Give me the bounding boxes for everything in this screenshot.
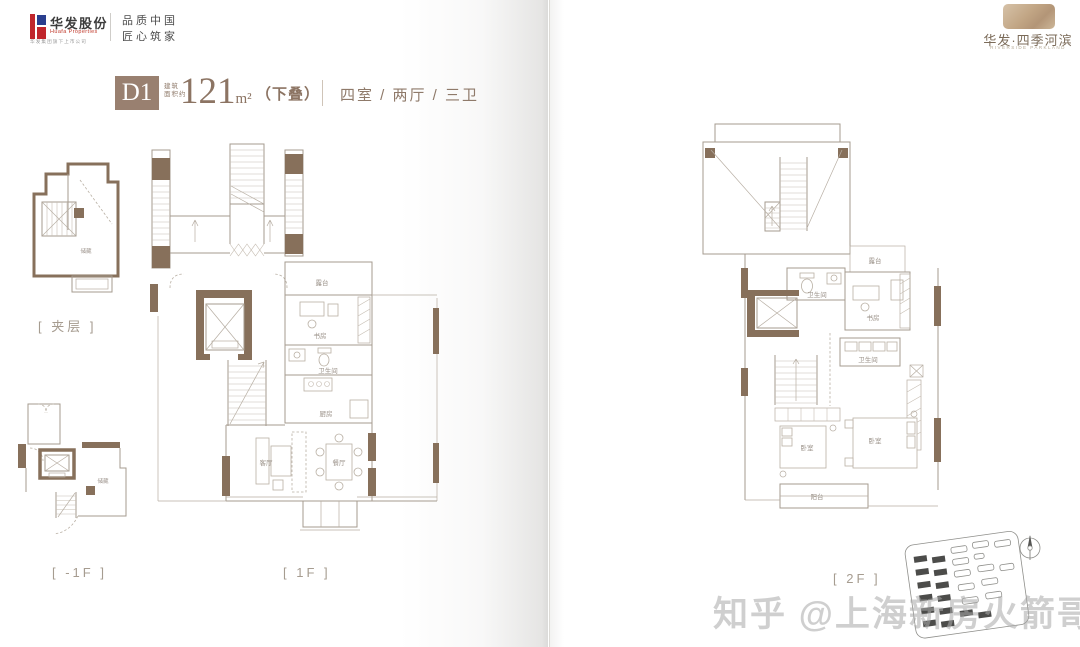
floorplan-mezzanine: 储藏 xyxy=(22,158,140,298)
page-fold-highlight xyxy=(550,0,564,647)
room-1f-living: 客厅 xyxy=(260,458,274,467)
project-artwork xyxy=(1003,4,1055,29)
caption-2f: [ 2F ] xyxy=(833,571,881,586)
project-name-en: RIVERSIDE PARKLAND xyxy=(968,45,1080,50)
mezzanine-room-label: 储藏 xyxy=(80,247,92,255)
room-1f-terrace: 露台 xyxy=(316,278,329,287)
room-2f-bath1: 卫生间 xyxy=(807,290,827,299)
logo-tagline: 华发集团旗下上市公司 xyxy=(30,39,87,45)
room-2f-study: 书房 xyxy=(867,313,880,322)
floorplan-1f: 露台 书房 卫生间 厨房 客厅 餐厅 xyxy=(140,138,450,563)
watermark: 知乎 @上海新房火箭哥 xyxy=(713,586,1080,637)
room-1f-kitchen: 厨房 xyxy=(320,409,333,418)
header-divider xyxy=(110,13,111,41)
room-1f-study: 书房 xyxy=(314,331,327,340)
caption-1f: [ 1F ] xyxy=(283,565,331,580)
room-2f-bedroom-left: 卧室 xyxy=(801,443,815,452)
floorplan-2f: 露台 卫生间 书房 卫生间 xyxy=(695,118,945,563)
area-value: 121m² xyxy=(180,70,252,113)
room-2f-bedroom-right: 卧室 xyxy=(869,436,883,445)
room-1f-bath: 卫生间 xyxy=(318,366,338,375)
basement-room-label: 储藏 xyxy=(97,477,109,485)
title-divider xyxy=(322,80,323,106)
compass-icon xyxy=(1020,535,1040,560)
area-unit: m² xyxy=(236,91,252,107)
unit-code-badge: D1 xyxy=(115,76,159,110)
caption-mezzanine: [ 夹层 ] xyxy=(38,316,96,335)
caption-basement: [ -1F ] xyxy=(52,565,107,580)
area-note: （下叠） xyxy=(256,83,320,104)
slogan-line-2: 匠心筑家 xyxy=(122,28,178,44)
brochure-spread: 华发股份 Huafa Properties 华发集团旗下上市公司 品质中国 匠心… xyxy=(0,0,1080,647)
logo-name-en: Huafa Properties xyxy=(50,29,98,35)
huafa-logo-icon xyxy=(30,14,46,39)
room-1f-dining: 餐厅 xyxy=(333,458,347,467)
room-2f-bath2: 卫生间 xyxy=(858,355,878,364)
slogan-line-1: 品质中国 xyxy=(122,12,178,28)
room-2f-balcony: 阳台 xyxy=(811,492,824,501)
room-2f-terrace: 露台 xyxy=(869,256,882,265)
floorplan-basement: 储藏 xyxy=(12,390,142,550)
area-number: 121 xyxy=(180,71,236,112)
rooms-summary: 四室 / 两厅 / 三卫 xyxy=(340,84,479,105)
